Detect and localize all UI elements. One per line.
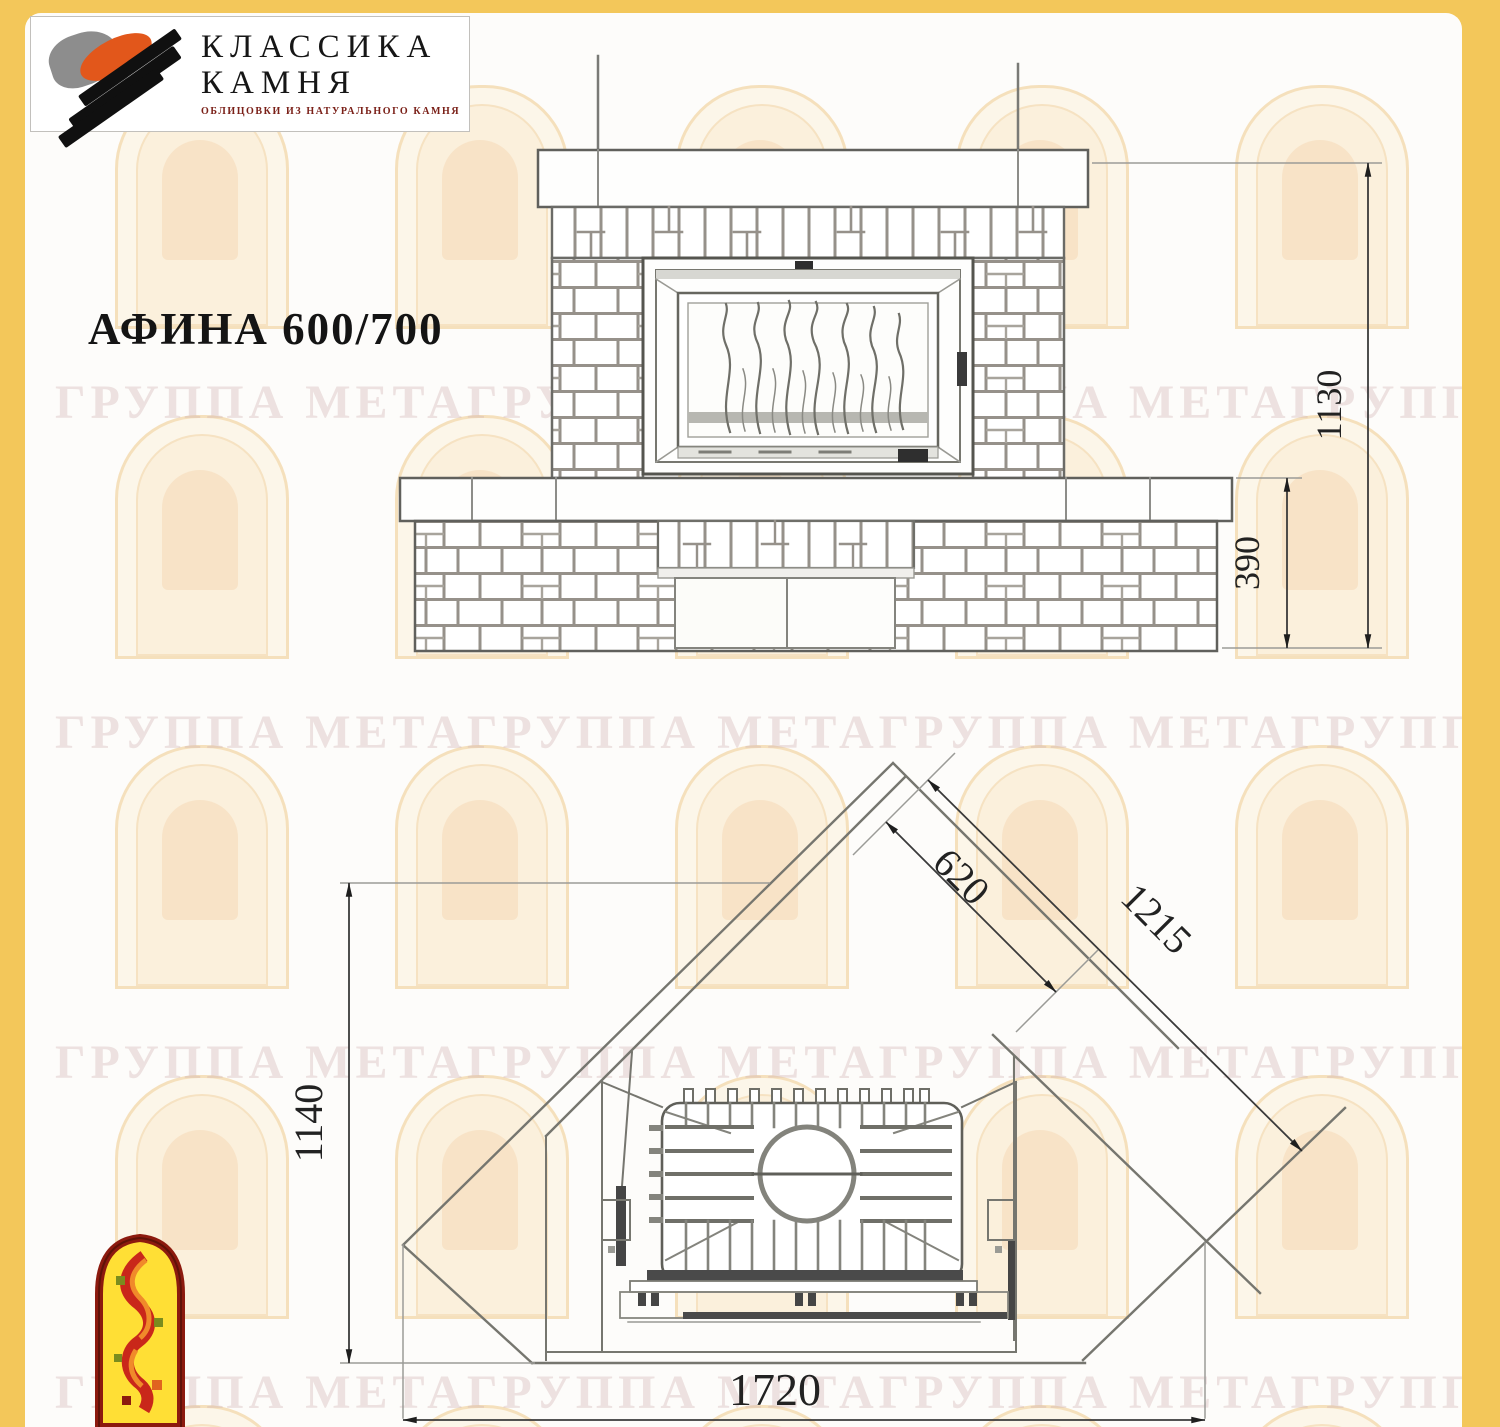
soldier-brick-band-top (552, 207, 1064, 258)
left-stone-column (552, 258, 643, 478)
plan-view-dimensions: 620 1215 1140 1720 (286, 753, 1302, 1420)
right-stone-column (973, 258, 1064, 478)
dim-line-1215 (928, 780, 1302, 1151)
wood-niche-left (675, 578, 787, 648)
dim-label-1215: 1215 (1112, 874, 1200, 962)
model-title: АФИНА 600/700 (88, 303, 444, 355)
wood-niche-right (787, 578, 895, 648)
soldier-brick-band-base (658, 521, 914, 568)
dim-label-1720: 1720 (729, 1364, 821, 1415)
firebox-insert-top-view (602, 1082, 1016, 1352)
spec-sheet-page: { "brand": { "logo_line1": "КЛАССИКА", "… (0, 0, 1500, 1427)
hearth-shelf (400, 478, 1232, 521)
brand-name-line2: КАМНЯ (201, 65, 463, 101)
plan-view-drawing (403, 763, 1345, 1418)
meta-flame-emblem-icon (92, 1230, 188, 1427)
firebox-door (643, 258, 973, 474)
brand-name-line1: КЛАССИКА (201, 29, 463, 65)
front-view-drawing (400, 56, 1232, 651)
ember-bar (688, 412, 928, 423)
fireplace-technical-drawing: 1130 390 (0, 0, 1500, 1427)
dim-label-390: 390 (1227, 536, 1267, 590)
brand-name: КЛАССИКА КАМНЯ ОБЛИЦОВКИ ИЗ НАТУРАЛЬНОГО… (201, 29, 463, 117)
dim-label-620: 620 (924, 839, 998, 913)
dim-label-1130: 1130 (1309, 370, 1349, 441)
vent-grille (898, 449, 928, 462)
stone-logo-icon (43, 27, 193, 121)
dim-label-1140: 1140 (286, 1084, 331, 1163)
brand-logo: КЛАССИКА КАМНЯ ОБЛИЦОВКИ ИЗ НАТУРАЛЬНОГО… (30, 16, 470, 132)
mantel-shelf (538, 150, 1088, 207)
stone-base (415, 521, 1217, 651)
chimney-lines (598, 56, 1018, 150)
brand-subtitle: ОБЛИЦОВКИ ИЗ НАТУРАЛЬНОГО КАМНЯ (201, 106, 463, 117)
door-handle (957, 352, 967, 386)
